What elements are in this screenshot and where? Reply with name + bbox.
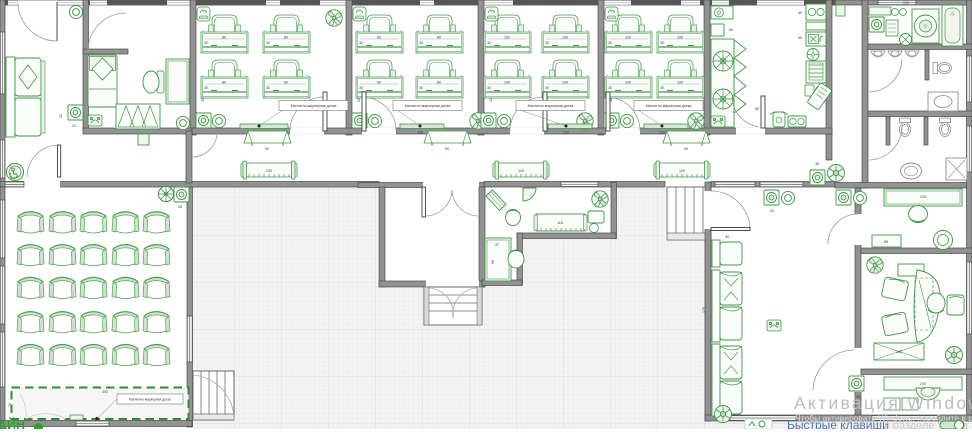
svg-text:120: 120 [518, 169, 524, 173]
svg-text:100: 100 [504, 80, 510, 84]
svg-text:40: 40 [725, 235, 729, 239]
svg-text:80: 80 [377, 35, 381, 39]
svg-text:30: 30 [545, 41, 549, 45]
svg-text:60: 60 [729, 28, 733, 32]
svg-text:33: 33 [609, 98, 613, 102]
svg-text:Магнитно-маркерная доска: Магнитно-маркерная доска [291, 104, 337, 108]
svg-text:40: 40 [798, 36, 802, 40]
svg-text:90: 90 [445, 147, 449, 151]
svg-text:30: 30 [266, 41, 270, 45]
svg-text:30: 30 [419, 86, 423, 90]
svg-text:100: 100 [504, 35, 510, 39]
svg-text:205: 205 [920, 195, 926, 199]
svg-text:100: 100 [562, 80, 568, 84]
svg-text:120: 120 [266, 169, 272, 173]
svg-text:120: 120 [563, 131, 569, 135]
svg-text:30: 30 [204, 41, 208, 45]
svg-text:100: 100 [625, 80, 631, 84]
svg-text:90: 90 [684, 147, 688, 151]
svg-text:АЙН: АЙН [0, 417, 25, 429]
svg-text:30: 30 [419, 41, 423, 45]
svg-text:115: 115 [557, 221, 563, 225]
svg-text:120: 120 [417, 131, 423, 135]
svg-text:33: 33 [59, 114, 63, 118]
svg-text:Магнитно-маркерная доска: Магнитно-маркерная доска [646, 104, 692, 108]
svg-text:37: 37 [495, 243, 499, 247]
svg-text:85: 85 [884, 240, 888, 244]
svg-text:30: 30 [608, 86, 612, 90]
svg-text:33: 33 [489, 98, 493, 102]
svg-text:80: 80 [755, 107, 759, 111]
svg-text:120: 120 [659, 131, 665, 135]
svg-text:33: 33 [357, 98, 361, 102]
svg-text:30: 30 [545, 86, 549, 90]
svg-text:105: 105 [903, 1, 909, 5]
svg-text:Быстрые клавиши: Быстрые клавиши [787, 418, 889, 429]
svg-text:80: 80 [222, 80, 226, 84]
svg-text:80: 80 [284, 35, 288, 39]
svg-text:33: 33 [201, 98, 205, 102]
svg-text:90: 90 [265, 147, 269, 151]
svg-text:175: 175 [702, 307, 706, 313]
svg-text:35: 35 [815, 162, 819, 166]
svg-text:80: 80 [437, 35, 441, 39]
svg-text:35: 35 [178, 205, 182, 209]
svg-text:30: 30 [359, 41, 363, 45]
svg-text:30: 30 [359, 86, 363, 90]
svg-text:Магнитно-маркерная доска: Магнитно-маркерная доска [528, 104, 574, 108]
svg-text:30: 30 [204, 86, 208, 90]
svg-text:30: 30 [266, 86, 270, 90]
svg-text:Магнитно-маркерная доска: Магнитно-маркерная доска [405, 104, 451, 108]
svg-text:30: 30 [660, 41, 664, 45]
svg-text:120: 120 [679, 169, 685, 173]
svg-text:80: 80 [377, 80, 381, 84]
svg-text:31: 31 [72, 124, 76, 128]
svg-text:100: 100 [625, 35, 631, 39]
svg-text:105: 105 [896, 350, 902, 354]
svg-text:33: 33 [770, 209, 774, 213]
svg-text:70: 70 [8, 403, 12, 407]
svg-text:90: 90 [491, 260, 495, 264]
svg-text:40: 40 [798, 11, 802, 15]
svg-text:100: 100 [677, 35, 683, 39]
svg-text:205: 205 [920, 382, 926, 386]
svg-text:80: 80 [222, 35, 226, 39]
svg-text:30: 30 [660, 86, 664, 90]
svg-text:30: 30 [487, 41, 491, 45]
svg-text:30: 30 [487, 86, 491, 90]
svg-text:30: 30 [608, 41, 612, 45]
svg-text:400: 400 [102, 390, 108, 394]
svg-text:100: 100 [562, 35, 568, 39]
svg-text:Магнитно-маркерная доска: Магнитно-маркерная доска [129, 398, 171, 402]
svg-text:100: 100 [677, 80, 683, 84]
svg-text:80: 80 [284, 80, 288, 84]
svg-text:Активация Windows: Активация Windows [794, 393, 972, 413]
svg-text:80: 80 [437, 80, 441, 84]
